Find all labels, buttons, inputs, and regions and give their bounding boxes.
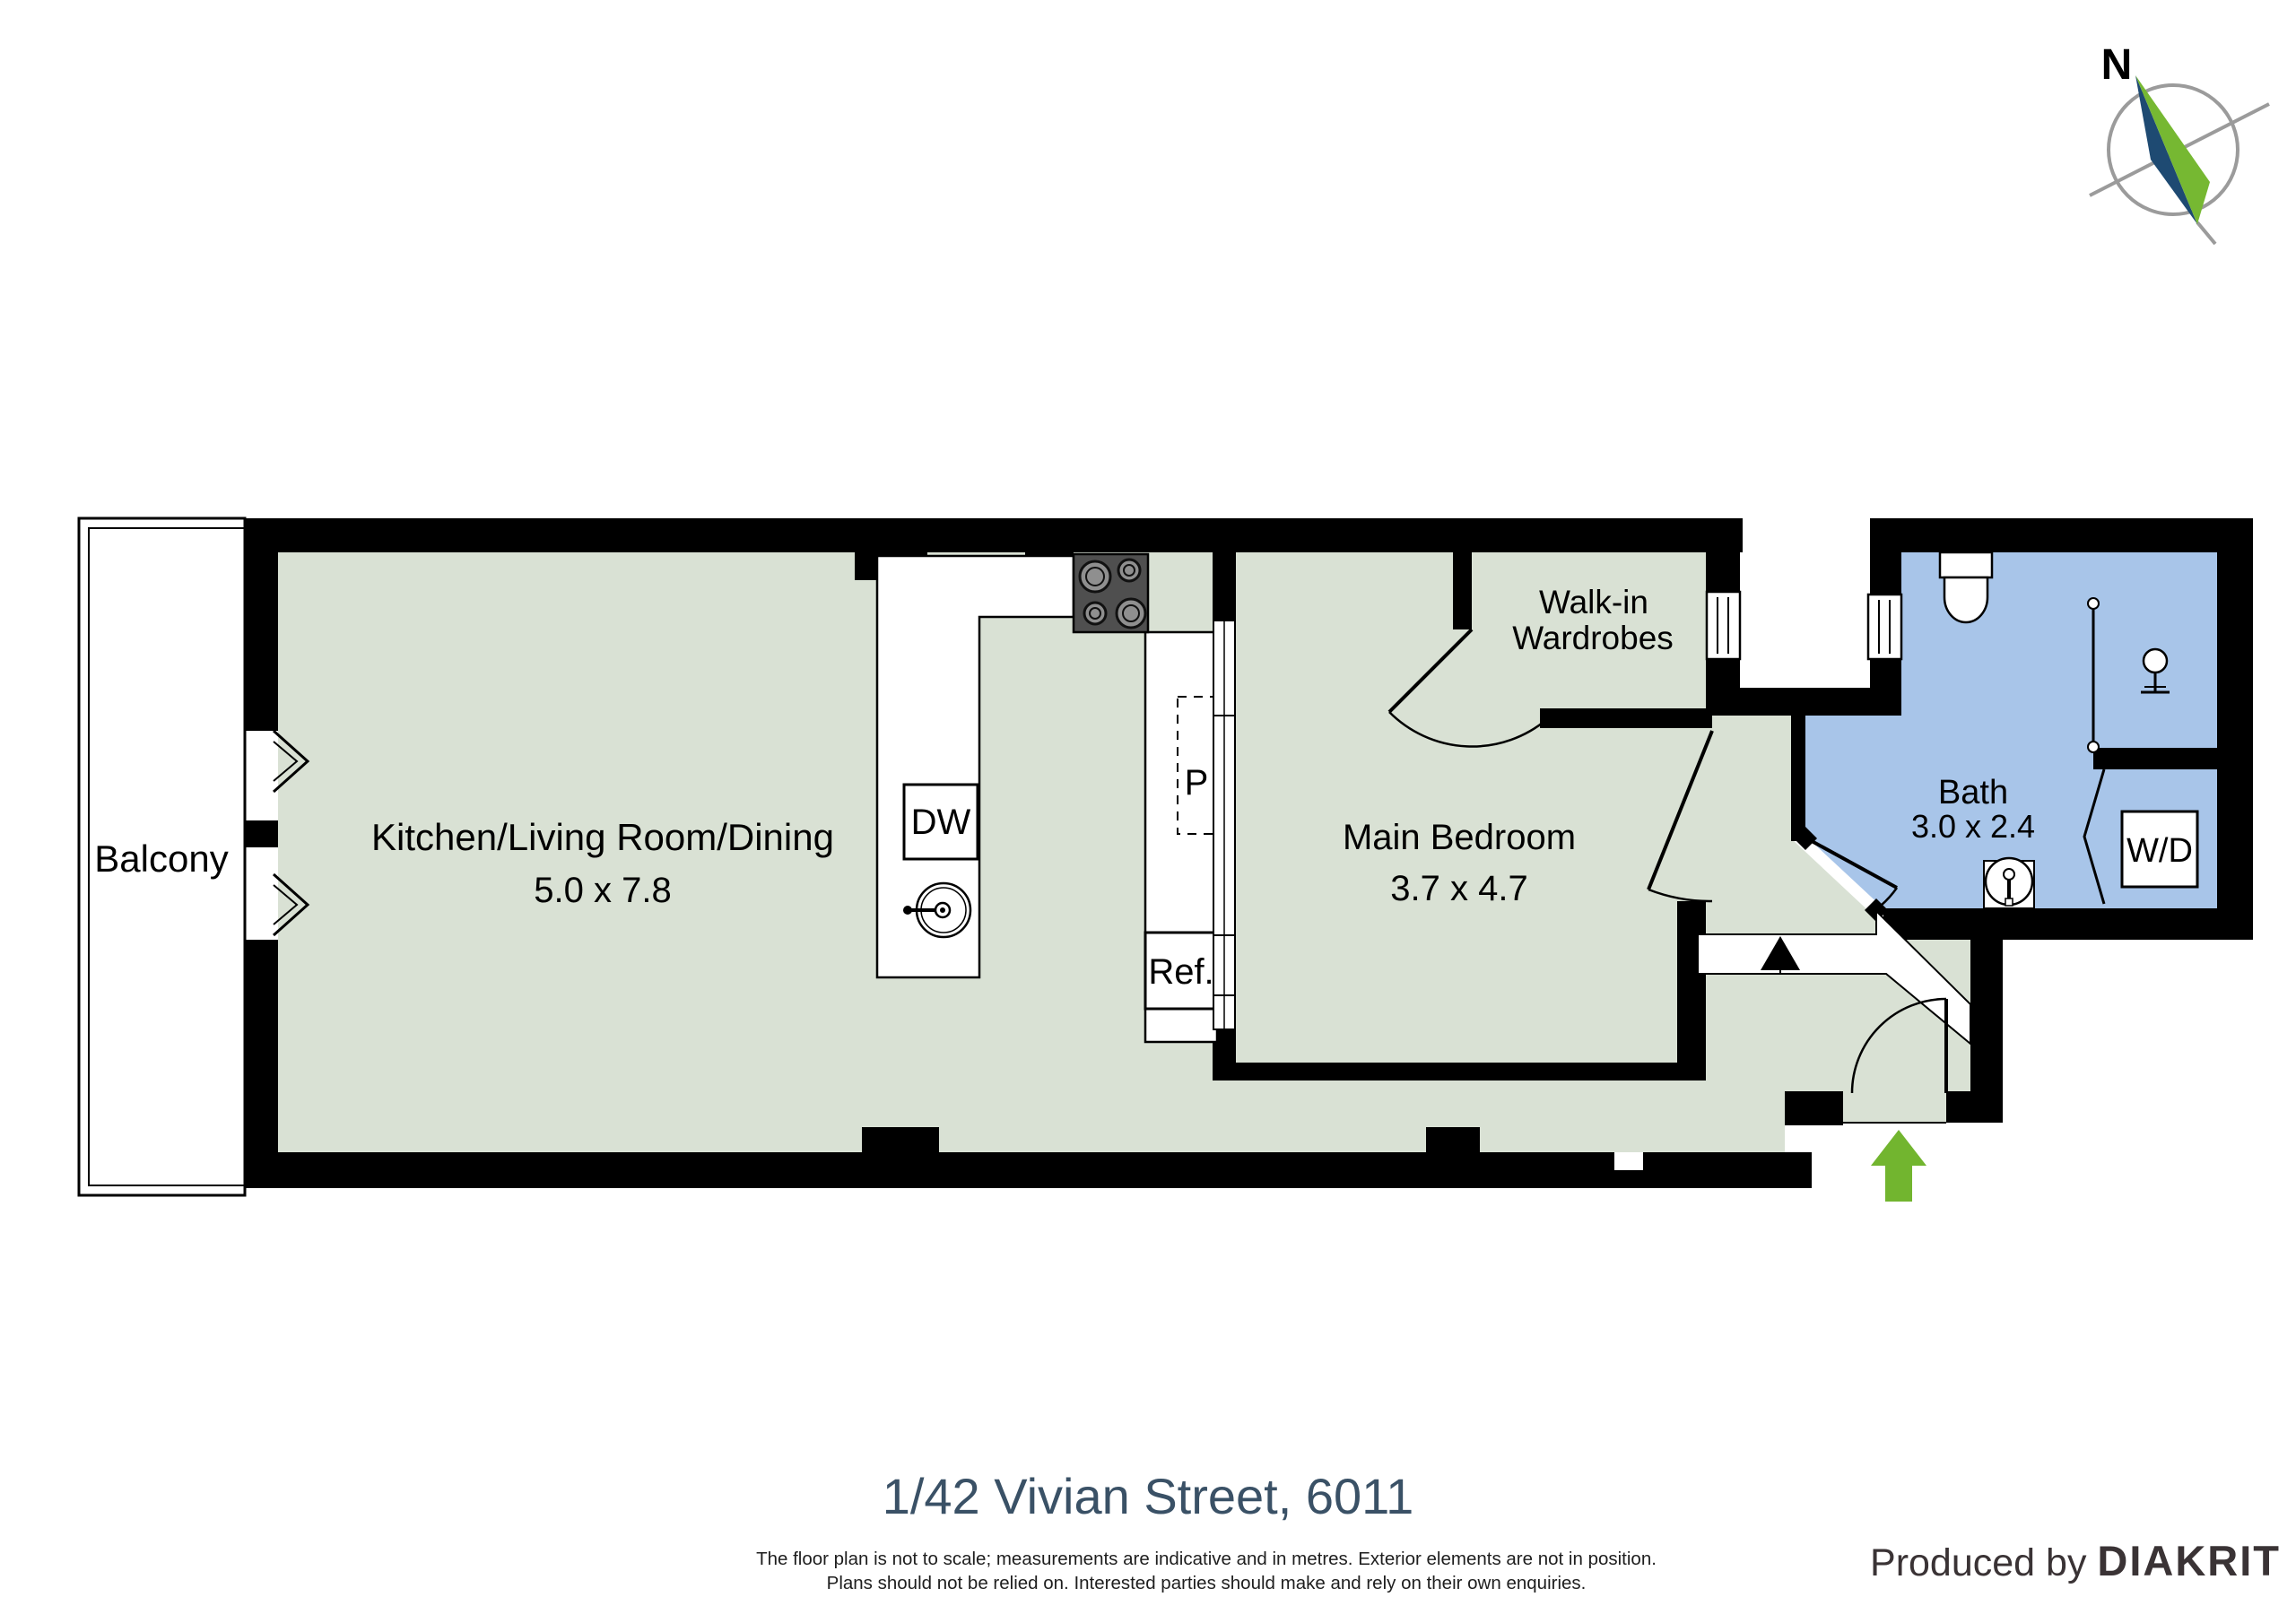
- compass-north-label: N: [2101, 41, 2133, 89]
- diakrit-brand: DIAKRIT: [2097, 1537, 2281, 1584]
- bedroom-dimensions: 3.7 x 4.7: [1390, 869, 1527, 908]
- floorplan-page: DW P Ref.: [0, 0, 2296, 1623]
- dishwasher-label: DW: [911, 803, 971, 842]
- living-room-dimensions: 5.0 x 7.8: [534, 871, 671, 910]
- compass-needle-green: [2135, 75, 2210, 224]
- wall-bedroom-right: [1677, 901, 1706, 1081]
- windows: [1707, 592, 1901, 659]
- bedroom-label: Main Bedroom: [1343, 818, 1576, 857]
- wall-pier-kitchen: [862, 1127, 939, 1154]
- wall-balcony-divider-top: [245, 518, 278, 731]
- produced-by-credit: Produced by DIAKRIT: [1870, 1537, 2281, 1584]
- living-room-label: Kitchen/Living Room/Dining: [371, 816, 834, 858]
- pantry-label: P: [1185, 763, 1209, 803]
- wall-wardrobe-bottom: [1540, 708, 1712, 728]
- produced-by-prefix: Produced by: [1870, 1541, 2097, 1584]
- bath-label: Bath: [1938, 774, 2008, 811]
- wall-hall-bath-thin: [1791, 716, 1805, 841]
- wardrobe-label-line1: Walk-in: [1539, 584, 1648, 621]
- bedroom-sliding-door: [1213, 621, 1235, 1029]
- stove: [1074, 554, 1148, 632]
- refrigerator-label: Ref.: [1148, 952, 1213, 992]
- floorplan-canvas: DW P Ref.: [0, 0, 2296, 1623]
- wall-bedroom-left-upper: [1213, 552, 1236, 621]
- bath-sink: [1984, 858, 2034, 908]
- toilet: [1940, 552, 1992, 622]
- wall-bottom-notch: [1614, 1152, 1643, 1170]
- wall-balcony-divider-stub: [245, 820, 278, 847]
- compass-rose-icon: N: [2090, 41, 2269, 244]
- wardrobe-window: [1707, 592, 1740, 659]
- page-title: 1/42 Vivian Street, 6011: [883, 1468, 1414, 1524]
- disclaimer-line2: Plans should not be relied on. Intereste…: [827, 1573, 1587, 1593]
- wall-right: [2217, 518, 2253, 940]
- wall-top-right: [1870, 518, 2253, 552]
- wall-hall-right: [1970, 940, 2003, 1091]
- compass-tail-line: [2197, 222, 2215, 244]
- wardrobe-label-line2: Wardrobes: [1512, 620, 1674, 656]
- entry-arrow-icon: [1871, 1130, 1926, 1202]
- wall-entry-right: [1946, 1091, 2003, 1123]
- disclaimer-line1: The floor plan is not to scale; measurem…: [756, 1549, 1657, 1569]
- wall-shower-wd-divider: [2093, 748, 2253, 769]
- bath-window: [1868, 595, 1901, 659]
- wall-balcony-divider-bottom: [245, 940, 278, 1188]
- washer-dryer-label: W/D: [2126, 832, 2193, 870]
- wall-top-left: [245, 518, 1743, 552]
- under-bedroom-floor-strip: [1215, 1081, 1785, 1152]
- bath-dimensions: 3.0 x 2.4: [1911, 808, 2035, 845]
- wall-wardrobe-left: [1453, 552, 1472, 629]
- wall-bedroom-bottom: [1213, 1063, 1706, 1081]
- wall-bottom: [245, 1152, 1812, 1188]
- wall-bath-bottom: [1883, 908, 2253, 940]
- wall-pier-living: [1426, 1127, 1480, 1154]
- wall-entry-step-pad: [1785, 1091, 1843, 1125]
- balcony-label: Balcony: [94, 838, 228, 880]
- footer: 1/42 Vivian Street, 6011 The floor plan …: [756, 1468, 2281, 1593]
